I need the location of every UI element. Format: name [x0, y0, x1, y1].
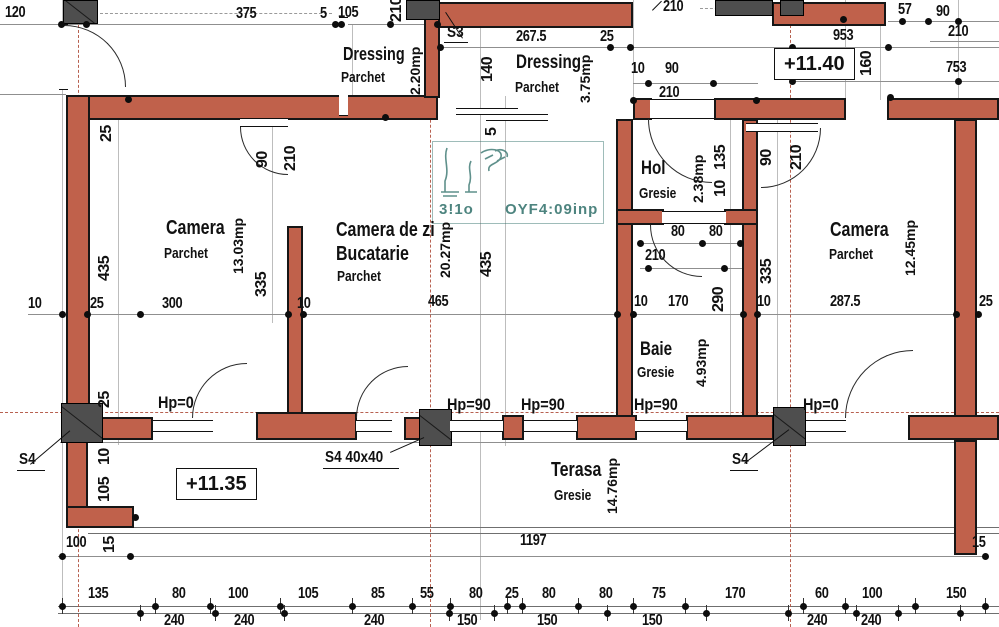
room-name-camera-right: Camera — [830, 219, 889, 241]
wall-segment — [66, 95, 90, 431]
chain-dot — [277, 603, 284, 610]
marker-s3: S3 — [447, 24, 464, 42]
dimension-dot — [753, 97, 760, 104]
room-area-baie: 4.93mp — [693, 332, 708, 394]
wall-segment — [66, 506, 134, 528]
dimension-label: 335 — [759, 254, 775, 288]
chain-dot — [491, 610, 498, 617]
dimension-label: 75 — [652, 586, 665, 602]
dimension-label: 160 — [859, 42, 875, 84]
dimension-dot — [127, 553, 134, 560]
room-area-dressing-right: 3.75mp — [577, 50, 592, 108]
dimension-dot — [83, 21, 90, 28]
room-finish-living: Parchet — [337, 268, 381, 285]
leader-line — [652, 1, 662, 11]
dimension-label: 5 — [484, 124, 500, 140]
dimension-label: 10 — [634, 294, 647, 310]
dimension-dot — [285, 311, 292, 318]
dimension-label: 210 — [948, 24, 968, 40]
opening-window — [356, 420, 392, 432]
room-area-dressing-left: 2.20mp — [407, 42, 422, 100]
dimension-dot — [637, 240, 644, 247]
wall-segment — [95, 417, 153, 440]
room-finish-terasa: Gresie — [554, 487, 591, 504]
chain-dot — [207, 603, 214, 610]
room-area-terasa: 14.76mp — [604, 457, 619, 515]
dimension-line — [930, 41, 999, 42]
chain-dot — [137, 610, 144, 617]
dimension-label: 90 — [665, 61, 678, 77]
floor-plan: 3!1o OYF4:09inp +11.40 +11.35 S3 S4 S4 4… — [0, 0, 999, 627]
chain-dot — [447, 603, 454, 610]
dimension-label: 435 — [479, 243, 495, 285]
room-name-living: Camera de zi — [336, 219, 435, 241]
dimension-label: 150 — [457, 613, 477, 627]
column-marker — [63, 0, 98, 24]
dimension-label: 267.5 — [516, 29, 546, 45]
dimension-label: 80 — [172, 586, 185, 602]
dimension-label: 170 — [668, 294, 688, 310]
axis-line-vertical — [790, 0, 791, 627]
dimension-label: 290 — [711, 281, 727, 317]
marker-s4-left: S4 — [19, 451, 36, 469]
dimension-line — [633, 83, 758, 84]
room-finish-camera-right: Parchet — [829, 246, 873, 263]
dimension-label: 210 — [645, 248, 665, 264]
chain-dot — [853, 610, 860, 617]
column-marker — [773, 407, 806, 446]
door-arc — [64, 25, 126, 87]
dimension-label: 135 — [713, 141, 729, 173]
room-name-baie: Baie — [640, 339, 672, 361]
opening-window — [524, 420, 577, 432]
dimension-dot — [614, 311, 621, 318]
chain-dot — [446, 610, 453, 617]
room-name-camera-left: Camera — [166, 217, 225, 239]
dashed-line — [100, 13, 332, 14]
wall-segment — [714, 98, 846, 120]
room-name-terasa: Terasa — [551, 459, 601, 481]
dimension-label: 240 — [234, 613, 254, 627]
dimension-label: 375 — [236, 6, 256, 22]
level-marker-upper: +11.40 — [774, 48, 855, 80]
dimension-dot — [434, 21, 441, 28]
chain-dot — [630, 603, 637, 610]
room-finish-dressing-right: Parchet — [515, 79, 559, 96]
wall-segment — [502, 415, 524, 440]
room-name-dressing-right: Dressing — [516, 52, 581, 74]
grid-line — [880, 16, 881, 100]
dimension-dot — [737, 240, 744, 247]
marker-s4-right: S4 — [732, 451, 749, 469]
marker-underline — [444, 42, 468, 43]
opening-window — [153, 420, 213, 432]
dimension-dot — [630, 311, 637, 318]
edge-line — [88, 527, 999, 528]
chain-dot — [800, 603, 807, 610]
chain-dot — [519, 603, 526, 610]
dimension-dot — [955, 78, 962, 85]
room-finish-dressing-left: Parchet — [341, 69, 385, 86]
room-area-living: 20.27mp — [437, 214, 452, 286]
room-area-camera-right: 12.45mp — [902, 214, 917, 282]
dimension-label: 25 — [90, 296, 103, 312]
dimension-label: 10 — [757, 294, 770, 310]
marker-underline — [323, 468, 399, 469]
watermark-stamp: 3!1o OYF4:09inp — [432, 141, 604, 224]
watermark-logo-icon — [437, 145, 532, 203]
dimension-line — [58, 556, 988, 557]
wall-segment — [954, 119, 977, 440]
wall-segment — [437, 2, 633, 28]
dimension-label: 100 — [228, 586, 248, 602]
room-finish-camera-left: Parchet — [164, 245, 208, 262]
dimension-label: 100 — [66, 535, 86, 551]
room-area-hol: 2.38mp — [690, 150, 705, 208]
marker-underline — [730, 470, 758, 471]
dimension-line — [0, 94, 66, 95]
edge-line — [58, 606, 999, 607]
dimension-label: 287.5 — [830, 294, 860, 310]
dimension-line — [790, 81, 999, 82]
dimension-label: 240 — [807, 613, 827, 627]
dimension-label: 85 — [371, 586, 384, 602]
column-diagonal — [63, 0, 98, 24]
dimension-label: 25 — [979, 294, 992, 310]
dimension-dot — [899, 18, 906, 25]
opening-window — [650, 99, 714, 119]
dimension-line — [60, 442, 960, 443]
dimension-dot — [137, 311, 144, 318]
dimension-dot — [840, 16, 847, 23]
dimension-label: 10 — [631, 61, 644, 77]
chain-dot — [682, 603, 689, 610]
dimension-label: 210 — [659, 85, 679, 101]
dimension-label: 100 — [862, 586, 882, 602]
dimension-label: 953 — [833, 28, 853, 44]
dimension-label: 80 — [599, 586, 612, 602]
wall-segment — [908, 415, 999, 440]
door-arc — [845, 350, 913, 418]
opening-window — [240, 118, 288, 127]
dimension-label: 210 — [663, 0, 683, 15]
dimension-label: 150 — [537, 613, 557, 627]
chain-dot — [982, 603, 989, 610]
dimension-label: 210 — [789, 138, 805, 176]
dimension-line — [28, 314, 980, 315]
dimension-dot — [887, 94, 894, 101]
dimension-label: 135 — [88, 586, 108, 602]
dimension-dot — [699, 240, 706, 247]
dimension-label: 10 — [297, 296, 310, 312]
dimension-label: 10 — [28, 296, 41, 312]
opening-window — [806, 420, 846, 432]
dimension-dot — [58, 21, 65, 28]
chain-dot — [281, 610, 288, 617]
wall-segment — [424, 16, 440, 98]
marker-underline — [17, 470, 45, 471]
wall-segment — [742, 119, 758, 430]
opening-window — [339, 17, 348, 116]
grid-line — [118, 119, 119, 445]
chain-dot — [785, 610, 792, 617]
chain-dot — [59, 603, 66, 610]
column-marker — [715, 0, 773, 16]
chain-dot — [504, 603, 511, 610]
dimension-label: 140 — [480, 50, 496, 88]
chain-dot — [349, 603, 356, 610]
column-marker — [406, 0, 440, 20]
hp-label-3: Hp=90 — [634, 395, 678, 415]
door-arc — [356, 366, 408, 418]
hp-label-4: Hp=0 — [803, 395, 839, 415]
dimension-label: 435 — [97, 247, 113, 289]
dimension-label: 80 — [542, 586, 555, 602]
dimension-label: 150 — [642, 613, 662, 627]
dimension-label: 753 — [946, 60, 966, 76]
room-finish-hol: Gresie — [639, 185, 676, 202]
dimension-label: 240 — [861, 613, 881, 627]
dimension-label: 25 — [600, 29, 613, 45]
room-name-dressing-left: Dressing — [343, 43, 405, 65]
dimension-dot — [953, 311, 960, 318]
dimension-label: 15 — [972, 535, 985, 551]
dimension-dot — [975, 311, 982, 318]
level-marker-lower: +11.35 — [176, 468, 257, 500]
dimension-label: 60 — [815, 586, 828, 602]
dimension-label: 10 — [713, 179, 729, 199]
grid-line — [730, 119, 731, 431]
dimension-label: 465 — [428, 294, 448, 310]
chain-dot — [703, 610, 710, 617]
dimension-label: 90 — [936, 4, 949, 20]
dimension-dot — [721, 265, 728, 272]
dimension-dot — [630, 97, 637, 104]
dimension-label: 80 — [469, 586, 482, 602]
dimension-dot — [132, 514, 139, 521]
dimension-label: 25 — [99, 121, 115, 147]
opening-window — [635, 420, 687, 432]
chain-dot — [152, 603, 159, 610]
dimension-dot — [885, 44, 892, 51]
room-area-camera-left: 13.03mp — [230, 212, 245, 280]
column-marker — [780, 0, 804, 16]
wall-segment — [616, 209, 664, 225]
dimension-label: 120 — [5, 5, 25, 21]
room-name-hol: Hol — [641, 158, 665, 180]
dimension-dot — [125, 96, 132, 103]
dimension-label: 80 — [709, 224, 722, 240]
dimension-label: 1197 — [520, 533, 546, 549]
dimension-label: 105 — [97, 469, 113, 509]
dimension-dot — [740, 311, 747, 318]
dimension-label: 210 — [389, 0, 405, 22]
dimension-label: 170 — [725, 586, 745, 602]
dimension-dot — [925, 18, 932, 25]
chain-dot — [604, 610, 611, 617]
watermark-text-right: OYF4:09inp — [505, 201, 598, 218]
dimension-label: 5 — [320, 6, 327, 22]
wall-segment — [576, 415, 637, 440]
dimension-label: 105 — [298, 586, 318, 602]
dimension-label: 335 — [254, 267, 270, 301]
chain-dot — [912, 603, 919, 610]
dimension-dot — [982, 553, 989, 560]
dimension-dot — [645, 265, 652, 272]
wall-segment — [256, 412, 357, 440]
dimension-dot — [59, 553, 66, 560]
hp-label-1: Hp=90 — [447, 395, 491, 415]
dimension-label: 57 — [898, 2, 911, 18]
opening-window — [450, 420, 503, 432]
wall-segment — [287, 226, 303, 430]
dimension-label: 90 — [759, 145, 775, 171]
marker-s4-40x40: S4 40x40 — [325, 449, 383, 467]
dimension-dot — [59, 311, 66, 318]
hp-label-0: Hp=0 — [158, 393, 194, 413]
dimension-label: 25 — [97, 387, 113, 413]
dimension-dot — [645, 80, 652, 87]
dimension-dot — [754, 311, 761, 318]
dimension-label: 25 — [505, 586, 518, 602]
dimension-dot — [382, 114, 389, 121]
dimension-dot — [627, 44, 634, 51]
wall-segment — [616, 119, 633, 430]
hp-label-2: Hp=90 — [521, 395, 565, 415]
dimension-dot — [437, 44, 444, 51]
dimension-label: 105 — [338, 5, 358, 21]
chain-dot — [575, 603, 582, 610]
dimension-label: 300 — [162, 296, 182, 312]
dimension-label: 10 — [97, 447, 113, 467]
wall-segment — [724, 209, 758, 225]
wall-segment — [686, 415, 774, 440]
dimension-label: 150 — [946, 586, 966, 602]
chain-dot — [957, 610, 964, 617]
chain-dot — [212, 610, 219, 617]
door-arc — [192, 363, 247, 418]
dimension-label: 210 — [283, 139, 299, 177]
dimension-line — [437, 47, 999, 48]
opening-window — [486, 114, 548, 121]
room-finish-baie: Gresie — [637, 364, 674, 381]
dimension-dot — [710, 80, 717, 87]
leader-line — [30, 430, 71, 465]
chain-dot — [895, 610, 902, 617]
dimension-label: 80 — [671, 224, 684, 240]
dimension-label: 240 — [164, 613, 184, 627]
dimension-label: 55 — [420, 586, 433, 602]
grid-line — [62, 0, 63, 612]
chain-dot — [409, 603, 416, 610]
dimension-label: 240 — [364, 613, 384, 627]
dimension-label: 15 — [102, 534, 118, 556]
wall-segment — [887, 98, 999, 120]
chain-dot — [842, 603, 849, 610]
room-name-living-line2: Bucatarie — [336, 243, 409, 265]
dimension-dot — [338, 21, 345, 28]
dimension-label: 90 — [255, 147, 271, 173]
